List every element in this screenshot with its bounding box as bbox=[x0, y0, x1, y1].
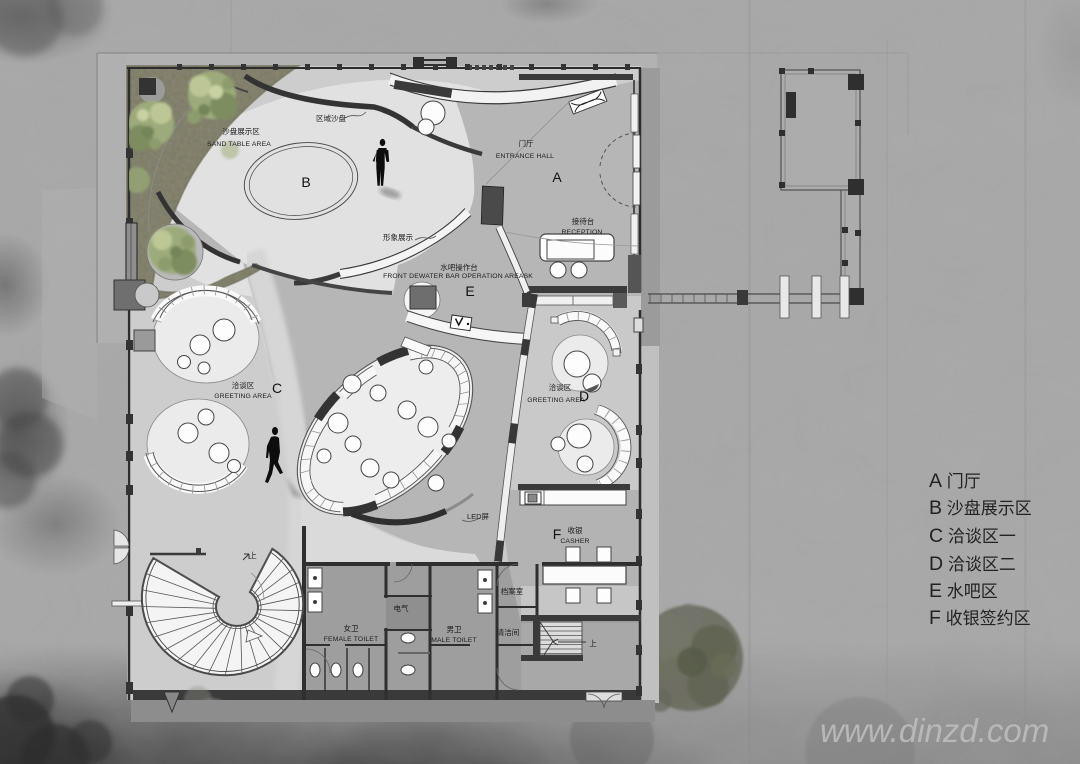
svg-text:RECEPTION: RECEPTION bbox=[561, 229, 602, 236]
svg-text:F: F bbox=[553, 526, 562, 542]
svg-text:清洁间: 清洁间 bbox=[497, 627, 520, 637]
svg-text:CASHER: CASHER bbox=[560, 538, 589, 545]
svg-text:接待台: 接待台 bbox=[572, 216, 595, 226]
svg-text:洽谈区: 洽谈区 bbox=[549, 382, 572, 392]
svg-text:GREETING AREA: GREETING AREA bbox=[527, 397, 585, 404]
svg-text:A: A bbox=[552, 169, 562, 185]
svg-text:F 收银签约区: F 收银签约区 bbox=[929, 607, 1031, 629]
svg-text:女卫: 女卫 bbox=[344, 623, 359, 633]
svg-text:D: D bbox=[579, 388, 589, 404]
svg-text:档案室: 档案室 bbox=[501, 586, 524, 596]
svg-text:B: B bbox=[301, 174, 310, 190]
svg-text:LED屏: LED屏 bbox=[467, 512, 490, 521]
svg-text:SAND TABLE AREA: SAND TABLE AREA bbox=[207, 141, 271, 148]
svg-text:GREETING AREA: GREETING AREA bbox=[214, 393, 272, 400]
svg-text:D 洽谈区二: D 洽谈区二 bbox=[929, 553, 1016, 575]
svg-text:洽谈区: 洽谈区 bbox=[232, 380, 255, 390]
svg-text:FEMALE TOILET: FEMALE TOILET bbox=[324, 636, 379, 643]
svg-text:上: 上 bbox=[589, 639, 597, 648]
svg-text:C: C bbox=[272, 380, 282, 396]
svg-text:水吧操作台: 水吧操作台 bbox=[440, 262, 478, 272]
svg-text:沙盘展示区: 沙盘展示区 bbox=[222, 126, 260, 136]
svg-text:E: E bbox=[465, 283, 474, 299]
svg-text:男卫: 男卫 bbox=[447, 625, 462, 634]
svg-text:上: 上 bbox=[249, 551, 257, 560]
svg-text:收银: 收银 bbox=[568, 525, 583, 535]
svg-text:B 沙盘展示区: B 沙盘展示区 bbox=[929, 497, 1032, 519]
svg-text:E 水吧区: E 水吧区 bbox=[929, 580, 998, 602]
svg-text:电气: 电气 bbox=[394, 603, 409, 613]
svg-text:ENTRANCE HALL: ENTRANCE HALL bbox=[496, 153, 554, 160]
svg-text:FRONT DEWATER BAR OPERATION AR: FRONT DEWATER BAR OPERATION AREASK bbox=[383, 273, 533, 280]
svg-text:MALE TOILET: MALE TOILET bbox=[431, 637, 477, 644]
svg-text:www.dinzd.com: www.dinzd.com bbox=[820, 712, 1049, 749]
svg-text:区域沙盘: 区域沙盘 bbox=[316, 113, 346, 123]
svg-text:C 洽谈区一: C 洽谈区一 bbox=[929, 525, 1016, 547]
svg-text:A 门厅: A 门厅 bbox=[929, 470, 981, 492]
svg-text:形象展示: 形象展示 bbox=[383, 232, 413, 242]
svg-text:门厅: 门厅 bbox=[519, 139, 534, 148]
